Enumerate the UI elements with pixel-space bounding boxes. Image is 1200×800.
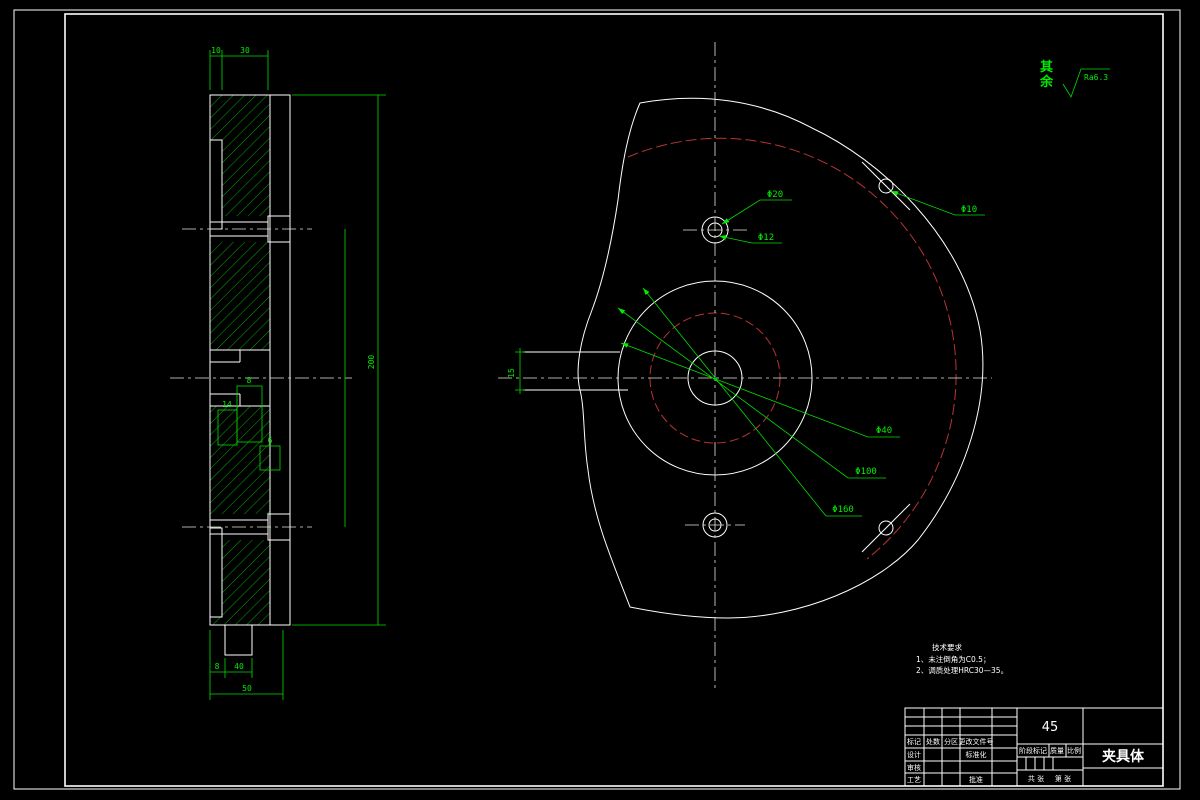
front-view: 15 Φ20 Φ12 Φ10 Φ40 Φ100 Φ160	[498, 42, 992, 690]
tb-mass: 质量	[1050, 746, 1064, 755]
cad-drawing-canvas: 10 30 200 8 14 6 8 40 50	[0, 0, 1200, 800]
bolt-circle-arc	[628, 138, 956, 559]
front-view-leaders: Φ20 Φ12 Φ10 Φ40 Φ100 Φ160	[618, 190, 985, 516]
tb-approve: 批准	[969, 775, 983, 784]
hole-lower-right	[862, 504, 910, 552]
tb-process: 工艺	[907, 776, 921, 784]
title-block-left-cols	[924, 708, 1017, 786]
label-phi20: Φ20	[767, 190, 783, 200]
title-block: 标记 处数 分区 更改文件号 设计 标准化 审核 工艺 批准 45 阶段标记 质…	[905, 708, 1163, 786]
hole-phi10-bottom-centerline	[862, 504, 910, 552]
dim-slot-width: 15	[507, 368, 516, 378]
dim-groove-c: 6	[268, 436, 273, 445]
notes-line-2: 2、调质处理HRC30—35。	[916, 665, 1008, 675]
tb-zone: 分区	[944, 737, 958, 746]
tb-count: 处数	[926, 737, 940, 746]
roughness-value: Ra6.3	[1084, 73, 1108, 82]
dim-top-small: 10	[211, 46, 221, 55]
dim-bottom-mid: 40	[234, 662, 244, 671]
notes-header: 技术要求	[932, 642, 962, 652]
dim-bottom-overall: 50	[242, 684, 252, 693]
leader-phi160	[643, 288, 862, 516]
flange-outline	[270, 95, 290, 625]
tb-stage: 阶段标记	[1019, 746, 1047, 755]
dim-top-large: 30	[240, 46, 250, 55]
tb-mark: 标记	[907, 737, 921, 746]
bottom-boss-outline	[225, 625, 252, 655]
tb-sheets: 共 张	[1028, 774, 1044, 783]
tb-change-doc: 更改文件号	[959, 737, 994, 746]
slot-edges	[523, 352, 628, 390]
leader-phi40	[621, 343, 900, 437]
tb-scale: 比例	[1067, 746, 1081, 755]
technical-notes: 技术要求 1、未注倒角为C0.5； 2、调质处理HRC30—35。	[916, 642, 1008, 675]
dim-groove-b: 14	[222, 400, 232, 409]
leader-phi20	[722, 200, 792, 224]
tb-part-name: 夹具体	[1102, 748, 1145, 765]
top-dim-lines	[210, 50, 268, 90]
label-phi160: Φ160	[832, 505, 854, 515]
tb-standardize: 标准化	[966, 750, 987, 759]
tb-page: 第 张	[1055, 774, 1071, 783]
surface-roughness-symbol: Ra6.3	[1063, 69, 1110, 97]
tb-material: 45	[1042, 720, 1059, 735]
plate-contour	[578, 98, 983, 618]
label-phi10: Φ10	[961, 205, 977, 215]
hole-phi10-top-centerline	[862, 162, 910, 210]
dim-bottom-small: 8	[215, 662, 220, 671]
tb-check: 审核	[907, 763, 921, 772]
label-phi12: Φ12	[758, 233, 774, 243]
label-phi100: Φ100	[855, 467, 877, 477]
side-section-view: 10 30 200 8 14 6 8 40 50	[170, 46, 386, 700]
notes-line-1: 1、未注倒角为C0.5；	[916, 654, 990, 664]
slot-dim-line	[515, 348, 525, 394]
tb-design: 设计	[907, 750, 921, 759]
dim-overall-height: 200	[367, 355, 376, 370]
label-phi40: Φ40	[876, 426, 892, 436]
dim-groove-a: 8	[247, 376, 252, 385]
hole-upper-right	[862, 162, 910, 210]
